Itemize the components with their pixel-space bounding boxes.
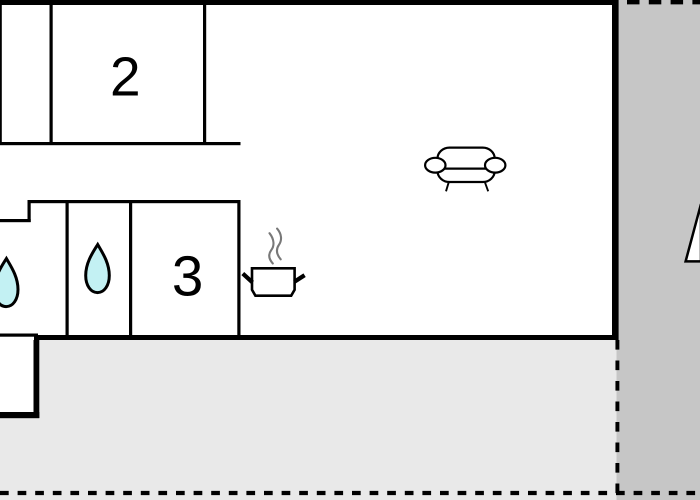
svg-text:2: 2	[110, 45, 141, 107]
svg-text:3: 3	[172, 245, 203, 308]
